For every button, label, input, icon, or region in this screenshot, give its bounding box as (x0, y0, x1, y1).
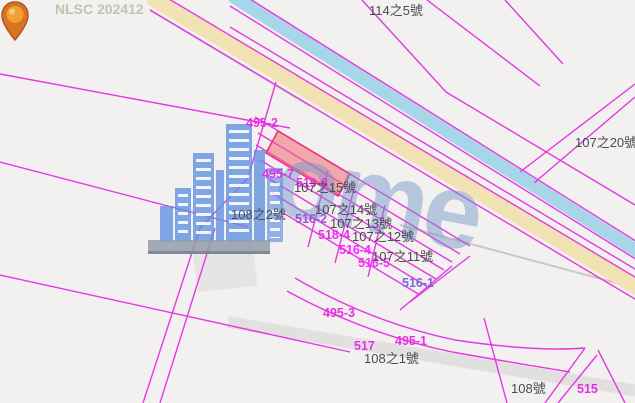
parcel-label: 495-1 (395, 334, 427, 348)
address-label: 107之15號 (294, 181, 356, 195)
parcel-label: 516-4 (339, 243, 371, 257)
address-label: 108之1號 (364, 352, 419, 366)
address-label: 107之12號 (352, 230, 414, 244)
address-label: 107之11號 (372, 250, 433, 264)
address-label: 108之2號 (231, 208, 286, 222)
map-canvas[interactable]: ome NLSC 202412 114之5號 107之20號 495-2 495… (0, 0, 635, 403)
building-icon (254, 150, 265, 242)
address-label: 108號 (511, 382, 546, 396)
parcel-label: 516-2 (295, 212, 327, 226)
parcel-label: 518-4 (318, 228, 350, 242)
building-icon (193, 153, 214, 242)
building-icon (175, 188, 191, 242)
parcel-label: 516-1 (402, 276, 434, 290)
logo-platform (148, 240, 270, 254)
address-label: 114之5號 (369, 4, 423, 18)
address-label: 107之20號 (575, 136, 635, 150)
building-icon (226, 124, 252, 242)
nlsc-watermark: NLSC 202412 (55, 2, 144, 16)
parcel-label: 515 (577, 382, 598, 396)
building-icon (216, 170, 224, 242)
parcel-label: 495-2 (246, 116, 278, 130)
parcel-label: 495-7 (262, 167, 294, 181)
building-icon (160, 206, 173, 242)
parcel-label: 495-3 (323, 306, 355, 320)
location-pin-icon[interactable] (0, 0, 30, 42)
